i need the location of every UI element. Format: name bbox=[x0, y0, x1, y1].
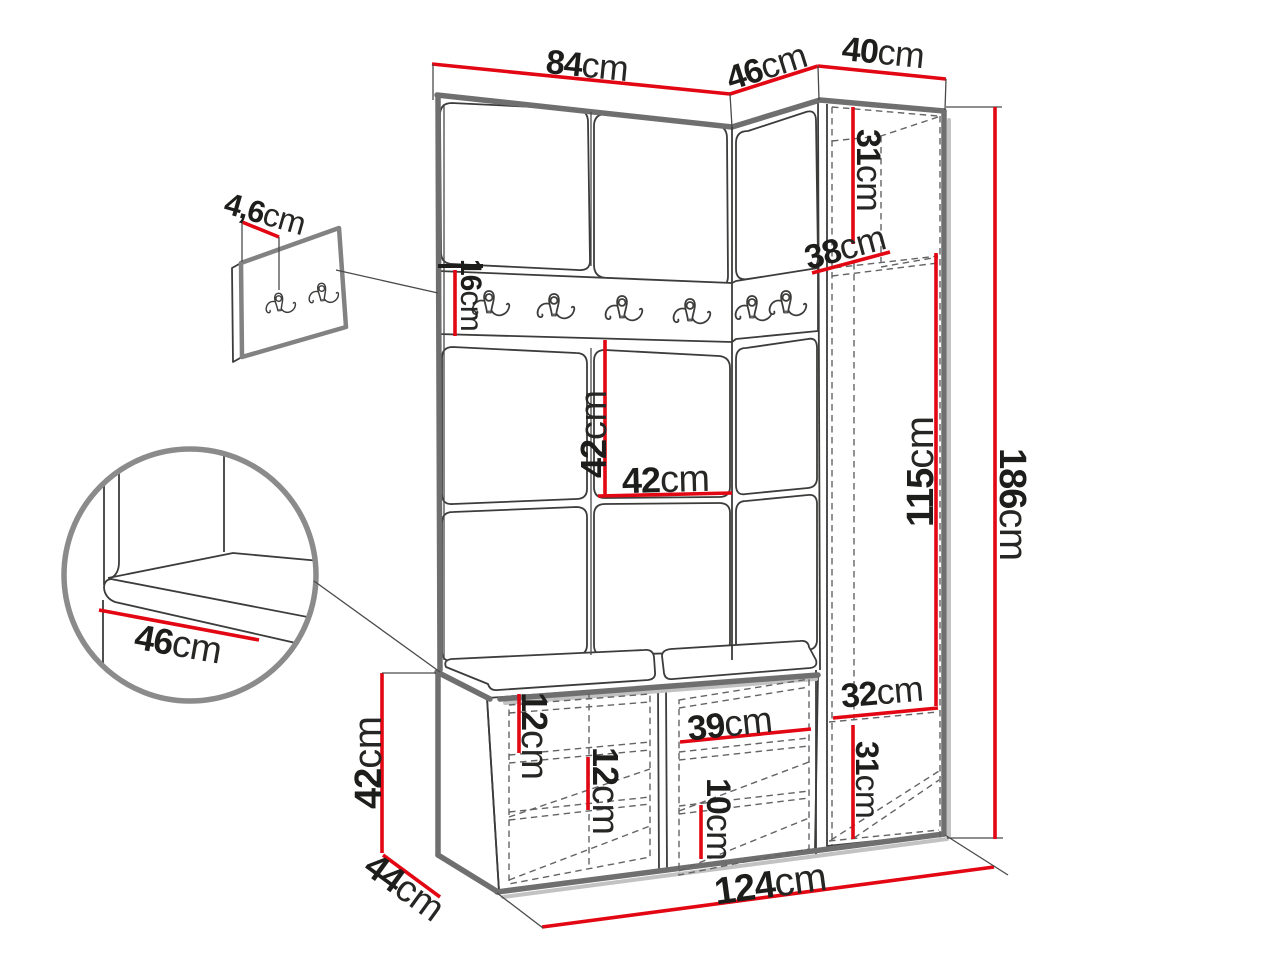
svg-text:12cm: 12cm bbox=[513, 692, 555, 779]
svg-text:10cm: 10cm bbox=[699, 778, 739, 860]
svg-text:12cm: 12cm bbox=[584, 747, 626, 834]
svg-text:40cm: 40cm bbox=[840, 28, 926, 76]
svg-text:31cm: 31cm bbox=[849, 129, 889, 211]
svg-text:31cm: 31cm bbox=[848, 741, 885, 818]
svg-text:84cm: 84cm bbox=[544, 41, 630, 89]
svg-text:115cm: 115cm bbox=[898, 417, 942, 528]
svg-text:42cm: 42cm bbox=[621, 458, 710, 502]
svg-text:186cm: 186cm bbox=[991, 448, 1035, 561]
svg-text:42cm: 42cm bbox=[346, 717, 390, 809]
svg-text:16cm: 16cm bbox=[454, 259, 490, 331]
svg-text:42cm: 42cm bbox=[573, 391, 615, 478]
